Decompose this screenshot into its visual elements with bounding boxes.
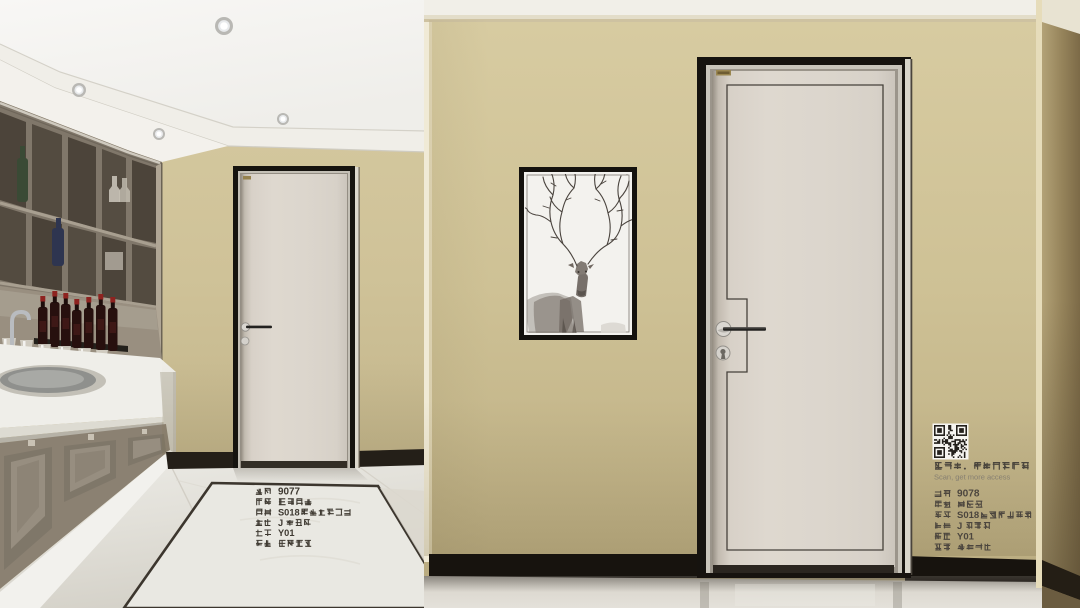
svg-text:9078: 9078 bbox=[957, 489, 980, 500]
svg-text:S018: S018 bbox=[957, 510, 979, 521]
svg-text:J: J bbox=[278, 518, 283, 528]
svg-text:Scan, get more access: Scan, get more access bbox=[934, 473, 1011, 482]
svg-text:J: J bbox=[957, 521, 962, 532]
svg-text:Y01: Y01 bbox=[278, 528, 295, 538]
svg-text:S018: S018 bbox=[278, 507, 300, 517]
svg-text:9077: 9077 bbox=[278, 487, 300, 498]
svg-text:Y01: Y01 bbox=[957, 532, 975, 543]
